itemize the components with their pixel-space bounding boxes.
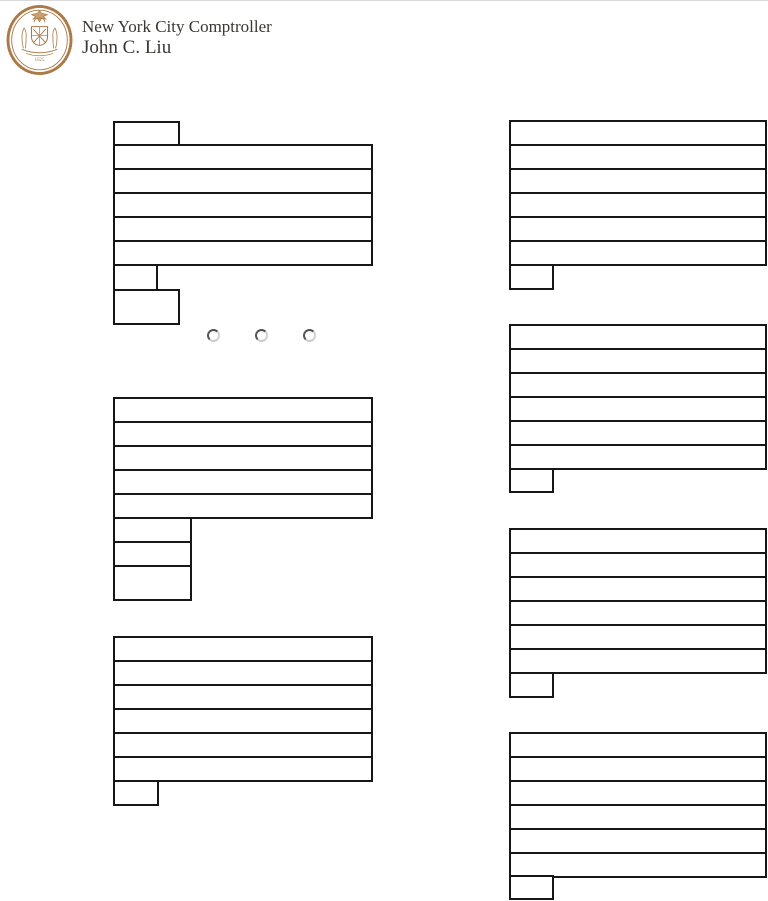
right-block-1-field-2-input[interactable] — [509, 144, 767, 170]
left-block-3-field-1-input[interactable] — [113, 636, 373, 662]
right-block-4-field-4-input[interactable] — [509, 804, 767, 830]
seal-eagle-icon — [31, 11, 47, 22]
comptroller-name: John C. Liu — [82, 37, 272, 58]
left-block-3-field-3-input[interactable] — [113, 684, 373, 710]
seal-supporter-left — [22, 28, 26, 48]
right-block-4-field-2-input[interactable] — [509, 756, 767, 782]
seal-year: 1625 — [34, 58, 45, 63]
right-block-1-field-4-input[interactable] — [509, 192, 767, 218]
left-block-1-field-8-input[interactable] — [113, 289, 180, 325]
right-block-4-field-7-input[interactable] — [509, 875, 554, 900]
right-block-1-field-5-input[interactable] — [509, 216, 767, 242]
right-block-3-field-3-input[interactable] — [509, 576, 767, 602]
left-block-2-field-5-input[interactable] — [113, 493, 373, 519]
left-block-1-field-2-input[interactable] — [113, 144, 373, 170]
right-block-2-field-7-input[interactable] — [509, 468, 554, 493]
left-block-1-field-5-input[interactable] — [113, 216, 373, 242]
seal-supporter-right — [53, 28, 57, 48]
left-block-1-field-3-input[interactable] — [113, 168, 373, 194]
right-block-1-field-1-input[interactable] — [509, 120, 767, 146]
nyc-comptroller-seal-logo: 1625 — [6, 3, 73, 77]
left-block-2-field-2-input[interactable] — [113, 421, 373, 447]
right-block-3-field-2-input[interactable] — [509, 552, 767, 578]
right-block-3-field-5-input[interactable] — [509, 624, 767, 650]
right-block-1-field-7-input[interactable] — [509, 264, 554, 290]
left-block-3-field-4-input[interactable] — [113, 708, 373, 734]
right-block-1-field-3-input[interactable] — [509, 168, 767, 194]
right-block-2-field-2-input[interactable] — [509, 348, 767, 374]
left-block-3-field-7-input[interactable] — [113, 780, 159, 806]
comptroller-form-page: 1625 New York City Comptroller John C. L… — [0, 0, 768, 901]
right-block-4-field-1-input[interactable] — [509, 732, 767, 758]
right-block-2-field-5-input[interactable] — [509, 420, 767, 446]
left-block-3-field-6-input[interactable] — [113, 756, 373, 782]
right-block-3-field-7-input[interactable] — [509, 672, 554, 698]
org-title: New York City Comptroller — [82, 17, 272, 37]
left-block-1-field-6-input[interactable] — [113, 240, 373, 266]
right-block-2-field-4-input[interactable] — [509, 396, 767, 422]
right-block-2-field-6-input[interactable] — [509, 444, 767, 470]
right-block-4-field-5-input[interactable] — [509, 828, 767, 854]
right-block-3-field-4-input[interactable] — [509, 600, 767, 626]
right-block-2-field-1-input[interactable] — [509, 324, 767, 350]
right-block-2-field-3-input[interactable] — [509, 372, 767, 398]
left-block-3-field-2-input[interactable] — [113, 660, 373, 686]
left-block-2-field-1-input[interactable] — [113, 397, 373, 423]
header-wordmark: New York City Comptroller John C. Liu — [82, 17, 272, 58]
left-block-1-field-7-input[interactable] — [113, 264, 158, 291]
right-block-3-field-1-input[interactable] — [509, 528, 767, 554]
left-block-2-field-7-input[interactable] — [113, 541, 192, 567]
right-block-3-field-6-input[interactable] — [509, 648, 767, 674]
left-block-3-field-5-input[interactable] — [113, 732, 373, 758]
radio-option-2-radio[interactable] — [255, 329, 268, 342]
radio-option-3-radio[interactable] — [303, 329, 316, 342]
left-block-1-field-4-input[interactable] — [113, 192, 373, 218]
right-block-1-field-6-input[interactable] — [509, 240, 767, 266]
left-block-2-field-3-input[interactable] — [113, 445, 373, 471]
radio-option-1-radio[interactable] — [207, 329, 220, 342]
left-block-1-field-1-input[interactable] — [113, 121, 180, 146]
left-block-2-field-4-input[interactable] — [113, 469, 373, 495]
right-block-4-field-3-input[interactable] — [509, 780, 767, 806]
left-block-2-field-8-input[interactable] — [113, 565, 192, 601]
left-block-2-field-6-input[interactable] — [113, 517, 192, 543]
